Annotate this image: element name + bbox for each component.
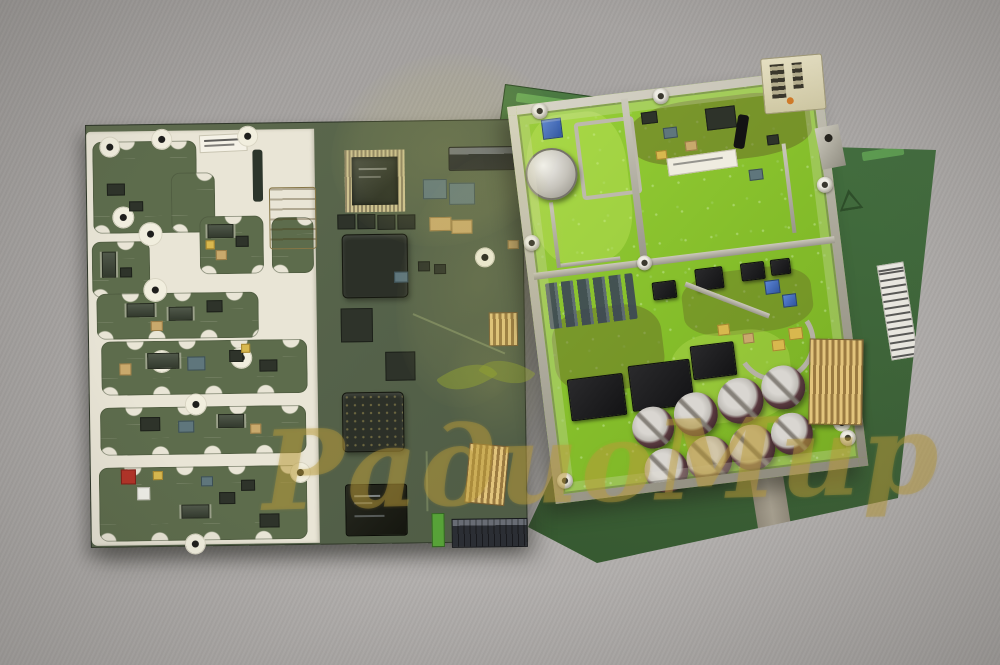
smd-chip	[423, 179, 447, 199]
gold-flex-connector	[464, 443, 509, 506]
capacitor	[508, 240, 519, 249]
soic-chip	[169, 307, 193, 321]
label-text-line	[204, 138, 240, 142]
soic-chip	[126, 303, 154, 317]
shield-compartment	[100, 405, 307, 456]
via-pad	[186, 534, 205, 553]
capacitor	[250, 424, 261, 434]
chip-marking	[354, 515, 384, 517]
smd-component	[107, 183, 125, 195]
soic-chip	[207, 224, 233, 238]
connector-slot	[770, 64, 787, 99]
board-connector	[448, 146, 516, 171]
smd-chip	[451, 220, 472, 234]
smd-component	[259, 513, 279, 527]
smd-chip	[429, 217, 451, 231]
smd-chip	[449, 183, 475, 205]
sim-connector	[269, 187, 317, 250]
orange-dot	[786, 97, 794, 105]
cream-connector	[760, 53, 827, 114]
green-text-marking	[862, 146, 905, 161]
qfp-die	[351, 157, 398, 206]
smd-chip	[377, 215, 395, 230]
stripe-hole	[773, 544, 783, 554]
shield-frame	[507, 69, 868, 504]
smd-component	[241, 480, 255, 491]
flash-chip	[345, 484, 408, 537]
smd-component	[201, 476, 213, 486]
smd-component	[187, 356, 205, 370]
soic-chip	[147, 353, 179, 369]
smd-component	[120, 267, 132, 277]
smd-component	[418, 261, 430, 271]
smd-component	[178, 421, 194, 433]
green-tab	[431, 513, 444, 547]
smd-component	[394, 272, 408, 283]
chip-marking	[359, 176, 381, 178]
capacitor	[216, 250, 227, 260]
smd-chip	[357, 214, 375, 229]
smd-component	[140, 417, 160, 431]
trace	[426, 451, 429, 511]
chip-marking	[354, 495, 380, 497]
chip-marking	[359, 168, 387, 170]
soic-chip	[102, 252, 116, 278]
chip-marking	[354, 502, 372, 504]
capacitor	[206, 240, 215, 249]
soic-chip	[181, 504, 209, 518]
smd-chip	[341, 308, 373, 342]
bga-chip	[342, 234, 409, 299]
smd-component	[434, 264, 446, 274]
via-pad	[186, 394, 206, 414]
rf-shield-module	[507, 69, 868, 504]
qfp-chip	[344, 150, 405, 213]
capacitor	[119, 363, 131, 375]
connector-slot	[791, 62, 803, 89]
photo-stage: РадиоМир	[0, 0, 1000, 665]
capacitor	[151, 321, 163, 331]
smd-chip	[397, 214, 415, 229]
smd-component	[206, 300, 222, 312]
green-barcode-mark	[830, 540, 848, 569]
capacitor	[153, 471, 163, 480]
smd-component	[259, 359, 277, 371]
capacitor	[241, 344, 250, 353]
bracket-hole	[824, 133, 833, 142]
bga-chip-mottled	[342, 392, 405, 453]
smd-chip	[337, 214, 355, 229]
bottom-connector	[452, 518, 528, 548]
gold-comb-connector	[489, 312, 518, 346]
via-pad	[476, 248, 494, 266]
smd-component	[129, 201, 143, 211]
smd-chip	[385, 351, 415, 380]
bare-metal-stripe	[750, 471, 799, 583]
baseband-board	[85, 119, 528, 548]
barcode-label	[877, 261, 919, 360]
soic-chip	[218, 414, 244, 428]
board-slot	[252, 150, 263, 202]
white-component	[137, 487, 150, 500]
gold-comb-connector	[808, 338, 863, 425]
smd-component	[236, 236, 249, 247]
smd-component	[219, 492, 235, 504]
red-component	[121, 469, 136, 484]
label-text-line	[204, 144, 234, 147]
triangle-mark	[837, 187, 864, 211]
